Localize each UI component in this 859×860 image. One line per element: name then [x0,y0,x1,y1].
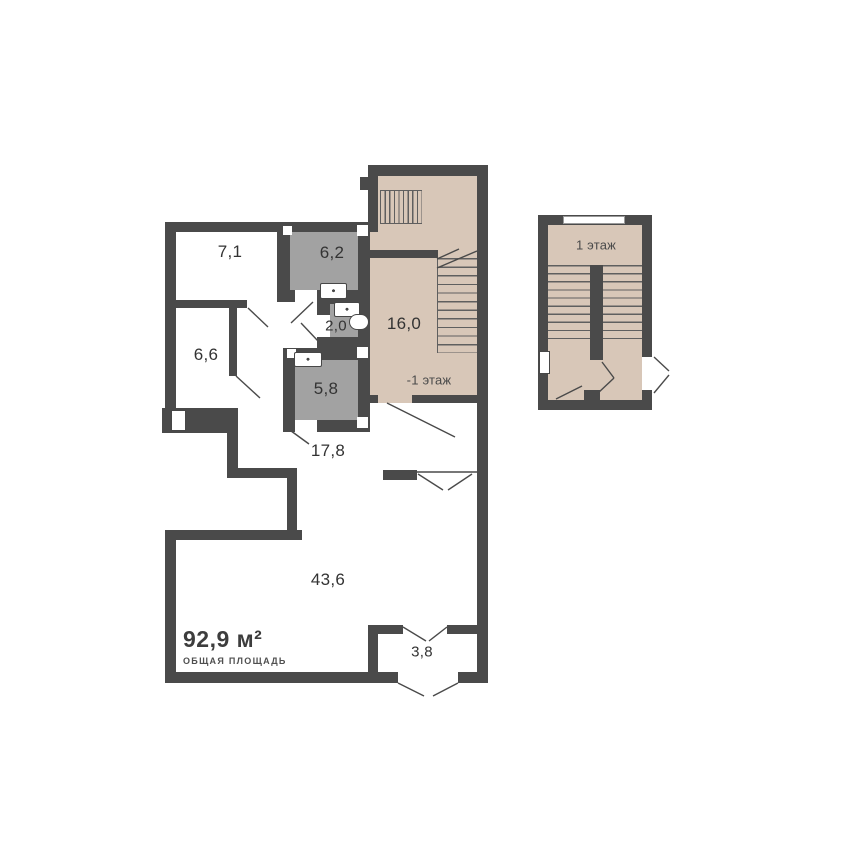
wall [227,468,297,478]
stair-flight-upper-icon [380,190,422,224]
wall [165,222,176,308]
door-swing-layer [0,0,859,860]
room-area-label: 16,0 [387,314,421,334]
wall [317,302,330,315]
door-swing [403,627,426,641]
room-area-label: 17,8 [311,441,345,461]
sink-icon [320,283,347,299]
wall [412,395,478,403]
room-area-label: 2,0 [325,318,347,335]
vent-corner [283,226,292,235]
wall [458,672,488,683]
room-area-label: 6,6 [194,345,219,365]
wall [642,215,652,357]
room-area-label: 7,1 [218,242,243,262]
door-swing [654,375,669,393]
wall [590,265,603,360]
wall [165,222,378,232]
total-area-caption: ОБЩАЯ ПЛОЩАДЬ [183,656,287,666]
door-swing [448,474,472,490]
door-swing [433,683,458,696]
wall [368,625,403,634]
wall [165,308,176,412]
window-icon [563,216,625,224]
toilet-icon [349,314,369,330]
wall [360,177,368,190]
wall [584,390,600,404]
door-swing [387,403,455,437]
stair-flight-right-icon [603,265,642,346]
wall [447,625,477,634]
floor-note-label: -1 этаж [407,373,452,388]
room-area-label: 5,8 [314,379,339,399]
wall [383,470,417,480]
room-area-label: 43,6 [311,570,345,590]
door-swing [248,308,268,327]
wall [277,290,295,302]
wall [165,300,247,308]
room-area-label: 6,2 [320,243,345,263]
wall-door-panel [171,410,186,431]
door-swing [236,376,260,398]
door-swing [301,323,318,341]
secondary-floor-label: 1 этаж [576,238,616,253]
wall [165,672,398,683]
wall [229,308,237,376]
door-swing [398,683,424,696]
door-swing [654,357,669,371]
wall-door-panel [539,351,550,374]
total-area-block: 92,9 м² ОБЩАЯ ПЛОЩАДЬ [183,626,287,666]
wall [477,165,488,683]
vent-corner [357,225,368,236]
wall [165,540,176,683]
door-swing [429,627,447,641]
room-area-label: 3,8 [411,644,433,661]
door-swing [291,302,313,323]
total-area-value: 92,9 м² [183,626,287,653]
stair-flight-main-icon [437,258,477,353]
wall [368,165,488,176]
sink-icon [294,352,322,367]
wall [370,250,438,258]
door-swing [418,474,443,490]
floor-plan: 7,1 6,2 2,0 6,6 5,8 16,0 -1 этаж 17,8 43… [0,0,859,860]
vent-corner [357,417,368,428]
vent-corner [357,347,368,358]
wall [165,530,302,540]
stair-flight-left-icon [548,265,590,346]
wall [370,395,378,403]
wall [538,215,548,410]
